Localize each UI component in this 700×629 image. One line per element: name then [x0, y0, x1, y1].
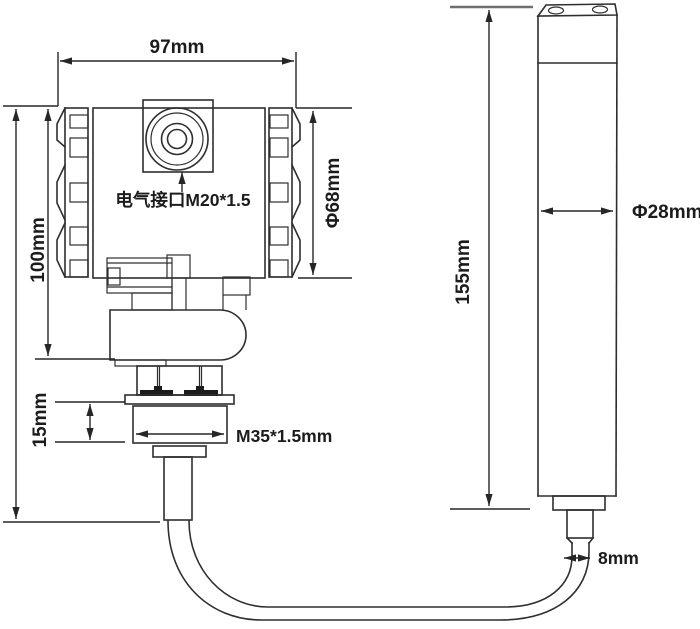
dim-label-transmitter-height: 100mm — [28, 217, 49, 283]
callout-electrical-port: 电气接口M20*1.5 — [115, 172, 250, 210]
dim-label-transmitter-width: 97mm — [150, 37, 205, 58]
connection-cable — [168, 521, 589, 620]
probe-figure — [538, 4, 617, 543]
probe-right-edge — [616, 15, 617, 496]
cable-inner-edge — [189, 521, 572, 607]
cable-tube — [164, 457, 192, 520]
dim-label-thread-section-height: 15mm — [30, 393, 51, 448]
probe-top-hole — [549, 7, 564, 14]
transmitter-figure — [57, 100, 300, 520]
right-end-cap — [269, 108, 300, 277]
m35-thread-block — [133, 406, 227, 443]
dim-probe-diameter: Φ28mm — [541, 202, 700, 223]
label-electrical-port: 电气接口M20*1.5 — [115, 190, 250, 210]
dim-cable-diameter: 8mm — [564, 548, 639, 568]
dim-label-probe-height: 155mm — [453, 239, 474, 305]
dim-label-cap-diameter: Φ68mm — [323, 158, 344, 229]
level-transmitter-dimension-drawing: 100mm 15mm 97mm Φ68mm 电气接口M20*1.5 M35*1.… — [0, 0, 700, 629]
probe-step — [553, 496, 605, 510]
dim-label-probe-diameter: Φ28mm — [632, 202, 700, 223]
hex-nut-section — [137, 366, 222, 396]
dim-thread-section-height: 15mm — [30, 393, 125, 448]
dim-transmitter-height: 100mm — [28, 109, 115, 359]
lower-housing — [110, 310, 246, 360]
flange-plate — [125, 395, 234, 404]
dim-cap-diameter: Φ68mm — [296, 108, 352, 278]
dim-label-mounting-thread: M35*1.5mm — [236, 426, 332, 446]
probe-cable-nozzle — [567, 510, 593, 538]
probe-top-face — [538, 4, 617, 16]
left-end-cap — [57, 108, 88, 277]
housing-lip — [115, 360, 166, 366]
probe-top-hole — [593, 6, 608, 13]
dim-overall-height — [3, 106, 160, 522]
cable-gland-collar — [153, 446, 206, 457]
dim-label-cable-diameter: 8mm — [598, 548, 639, 568]
terminal-brackets — [107, 255, 250, 310]
electrical-port — [143, 100, 213, 172]
dim-transmitter-width: 97mm — [58, 37, 296, 108]
dimensional-drawing-canvas: 100mm 15mm 97mm Φ68mm 电气接口M20*1.5 M35*1.… — [0, 0, 700, 629]
dim-probe-height: 155mm — [450, 7, 533, 509]
